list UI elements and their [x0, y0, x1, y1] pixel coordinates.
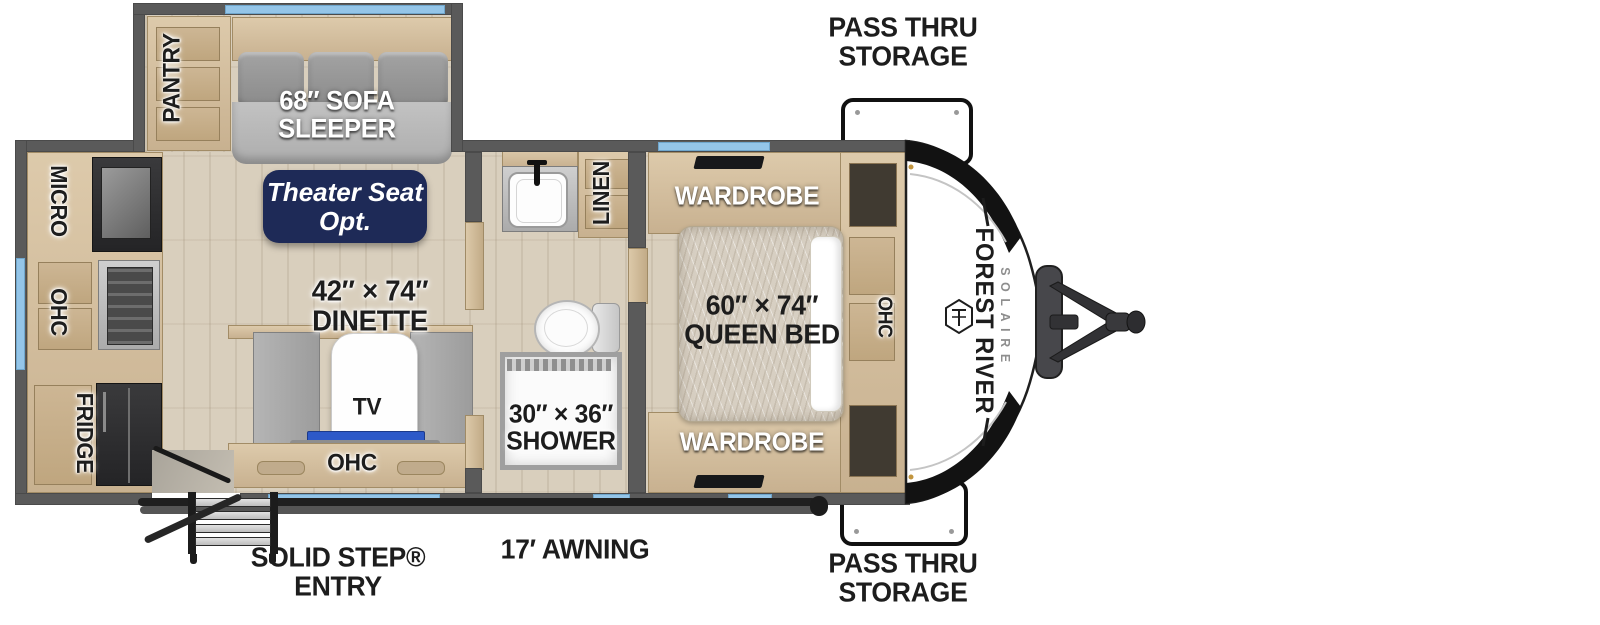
brand-name-label: FOREST RIVER: [971, 228, 997, 415]
theater-seat-option-line1: Theater Seat: [263, 178, 427, 207]
brand-model-label: SOLAIRE: [998, 267, 1012, 368]
rv-floorplan: Theater Seat Opt.: [0, 0, 1600, 625]
window-left-wall: [16, 258, 25, 370]
pass-thru-storage-top-label: PASS THRU STORAGE: [828, 13, 977, 72]
awning-end-cap: [810, 496, 828, 516]
wardrobe-top-label: WARDROBE: [675, 182, 820, 209]
fridge-label: FRIDGE: [73, 393, 97, 474]
window-bedroom-top: [658, 142, 770, 151]
queen-bed-label: 60″ × 74″ QUEEN BED: [684, 291, 840, 350]
sofa-sleeper-label: 68″ SOFA SLEEPER: [278, 87, 396, 144]
hitch-coupler: [1106, 313, 1130, 331]
micro-label: MICRO: [47, 165, 71, 236]
bath-door-jamb-bottom: [465, 415, 484, 470]
shower-label: 30″ × 36″ SHOWER: [506, 401, 615, 456]
wall-bath-left-upper: [465, 152, 482, 222]
dinette-table: [331, 333, 418, 440]
window-slideout-top: [225, 5, 445, 14]
wall-bath-right-upper: [628, 152, 646, 248]
wall-top-left: [15, 140, 145, 152]
linen-label: LINEN: [589, 161, 613, 225]
slideout-wall-right: [451, 3, 463, 152]
theater-seat-option-badge: Theater Seat Opt.: [263, 170, 427, 243]
bedroom-ohc-label: OHC: [874, 296, 895, 337]
awning-label: 17′ AWNING: [501, 534, 650, 563]
bath-door-jamb-top: [465, 222, 484, 310]
dinette-label: 42″ × 74″ DINETTE: [312, 277, 429, 338]
slideout-wall-left: [133, 3, 145, 152]
bedroom-door-jamb: [628, 248, 648, 304]
kitchen-ohc-label: OHC: [47, 288, 71, 336]
front-cap-and-hitch: [900, 130, 1150, 515]
wall-bath-right-lower: [628, 302, 646, 493]
dinette-ohc-label: OHC: [327, 450, 377, 475]
hitch-coupler-knob: [1127, 311, 1145, 333]
tv-label: TV: [353, 394, 382, 419]
bedroom-window-valance-top: [693, 156, 764, 169]
pass-thru-storage-bottom-label: PASS THRU STORAGE: [828, 549, 977, 608]
wall-bottom-left: [15, 493, 152, 505]
wardrobe-bottom-label: WARDROBE: [680, 428, 825, 455]
entry-landing: [152, 450, 234, 493]
bedroom-window-valance-bottom: [693, 475, 764, 488]
bath-faucet: [534, 160, 540, 186]
range-cooktop: [98, 260, 160, 350]
pantry-label: PANTRY: [159, 33, 184, 122]
theater-seat-option-line2: Opt.: [263, 207, 427, 236]
hitch-crossbar: [1050, 315, 1078, 329]
solid-step-entry-label: SOLID STEP® ENTRY: [251, 543, 426, 602]
microwave-oven: [92, 157, 162, 252]
toilet-bowl: [534, 300, 600, 358]
wall-bath-left-lower: [465, 468, 482, 493]
